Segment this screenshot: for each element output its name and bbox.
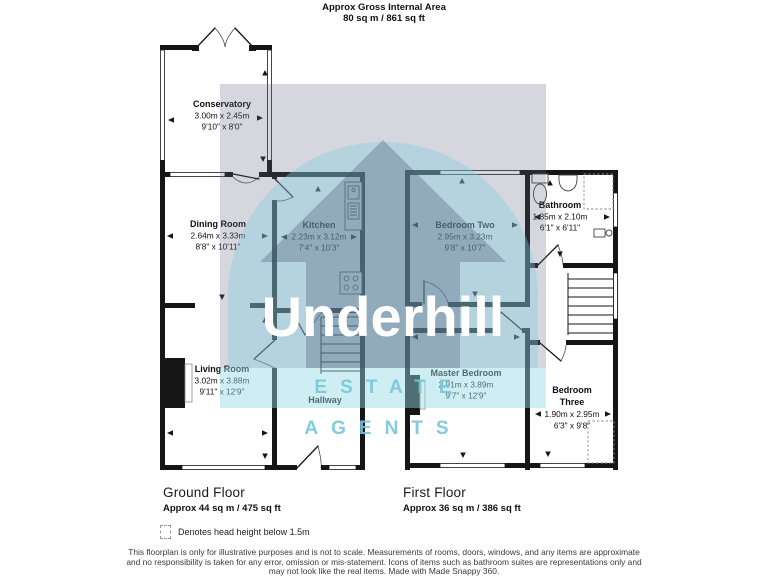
bathroom-name: Bathroom bbox=[539, 200, 582, 210]
ground-floor-area: Approx 44 sq m / 475 sq ft bbox=[163, 503, 281, 514]
master-name: Master Bedroom bbox=[430, 368, 501, 378]
dining-metric: 2.64m x 3.33m bbox=[191, 231, 246, 241]
room-label-bedroom-two: Bedroom Two 2.95m x 3.23m 9'8" x 10'7" bbox=[435, 220, 495, 253]
dashed-box-icon bbox=[160, 525, 171, 539]
gross-area-value: 80 sq m / 861 sq ft bbox=[0, 14, 768, 25]
reduced-head-height-area bbox=[588, 421, 614, 463]
living-imperial: 9'11" x 12'9" bbox=[200, 387, 245, 397]
room-label-master-bedroom: Master Bedroom 2.91m x 3.89m 9'7" x 12'9… bbox=[430, 368, 501, 401]
living-metric: 3.02m x 3.88m bbox=[195, 376, 250, 386]
disclaimer: This floorplan is only for illustrative … bbox=[0, 548, 768, 576]
room-label-bathroom: Bathroom 1.85m x 2.10m 6'1" x 6'11" bbox=[533, 200, 588, 233]
room-label-conservatory: Conservatory 3.00m x 2.45m 9'10" x 8'0" bbox=[193, 99, 251, 132]
kitchen-name: Kitchen bbox=[302, 220, 335, 230]
kitchen-stove-icon bbox=[340, 272, 362, 294]
dining-name: Dining Room bbox=[190, 219, 246, 229]
living-name: Living Room bbox=[195, 364, 250, 374]
ground-internal-walls bbox=[160, 172, 365, 465]
first-floor-plan: Bedroom Two 2.95m x 3.23m 9'8" x 10'7" B… bbox=[400, 165, 625, 475]
shower-icon bbox=[584, 174, 613, 209]
first-floor-area: Approx 36 sq m / 386 sq ft bbox=[403, 503, 521, 514]
head-height-legend: Denotes head height below 1.5m bbox=[160, 525, 310, 539]
conservatory-imperial: 9'10" x 8'0" bbox=[202, 122, 243, 132]
bedroom-three-name-2: Three bbox=[560, 397, 585, 407]
bathroom-metric: 1.85m x 2.10m bbox=[533, 212, 588, 222]
basin-icon bbox=[559, 175, 577, 191]
room-label-hallway: Hallway bbox=[308, 395, 342, 405]
room-label-kitchen: Kitchen 2.23m x 3.12m 7'4" x 10'3" bbox=[292, 220, 347, 253]
bedroom-two-imperial: 9'8" x 10'7" bbox=[445, 243, 486, 253]
room-label-living: Living Room 3.02m x 3.88m 9'11" x 12'9" bbox=[195, 364, 250, 397]
room-label-dining: Dining Room 2.64m x 3.33m 8'8" x 10'11" bbox=[190, 219, 246, 252]
bedroom-two-metric: 2.95m x 3.23m bbox=[438, 232, 493, 242]
conservatory-metric: 3.00m x 2.45m bbox=[195, 111, 250, 121]
ground-floor-label: Ground Floor bbox=[163, 485, 281, 500]
disclaimer-line-3: may not look like the real items. Made w… bbox=[0, 567, 768, 576]
first-floor-caption: First Floor Approx 36 sq m / 386 sq ft bbox=[403, 485, 521, 514]
dining-imperial: 8'8" x 10'11" bbox=[196, 242, 241, 252]
bedroom-three-imperial: 6'3" x 9'8" bbox=[554, 421, 590, 431]
ground-floor-plan: Conservatory 3.00m x 2.45m 9'10" x 8'0" … bbox=[155, 22, 370, 477]
radiator-icon bbox=[594, 229, 612, 237]
legend-text: Denotes head height below 1.5m bbox=[178, 527, 310, 537]
master-imperial: 9'7" x 12'9" bbox=[446, 391, 487, 401]
first-floor-label: First Floor bbox=[403, 485, 521, 500]
first-stairs bbox=[568, 273, 613, 335]
bedroom-three-name-1: Bedroom bbox=[552, 385, 592, 395]
conservatory-name: Conservatory bbox=[193, 99, 251, 109]
room-label-bedroom-three: Bedroom Three 1.90m x 2.95m 6'3" x 9'8" bbox=[545, 385, 600, 431]
ground-stairs bbox=[321, 317, 360, 374]
ground-floor-caption: Ground Floor Approx 44 sq m / 475 sq ft bbox=[163, 485, 281, 514]
ground-outer-walls bbox=[160, 172, 365, 470]
page-title: Approx Gross Internal Area 80 sq m / 861… bbox=[0, 3, 768, 24]
kitchen-imperial: 7'4" x 10'3" bbox=[299, 243, 340, 253]
gross-area-title: Approx Gross Internal Area bbox=[0, 3, 768, 14]
bedroom-three-metric: 1.90m x 2.95m bbox=[545, 409, 600, 419]
kitchen-metric: 2.23m x 3.12m bbox=[292, 232, 347, 242]
master-chimney-breast bbox=[408, 375, 425, 415]
kitchen-sink-icon bbox=[345, 182, 362, 230]
floorplan-page: Approx Gross Internal Area 80 sq m / 861… bbox=[0, 0, 768, 576]
bedroom-two-name: Bedroom Two bbox=[435, 220, 495, 230]
bathroom-imperial: 6'1" x 6'11" bbox=[540, 223, 580, 233]
master-metric: 2.91m x 3.89m bbox=[439, 380, 494, 390]
living-room-chimney-breast bbox=[165, 358, 192, 408]
